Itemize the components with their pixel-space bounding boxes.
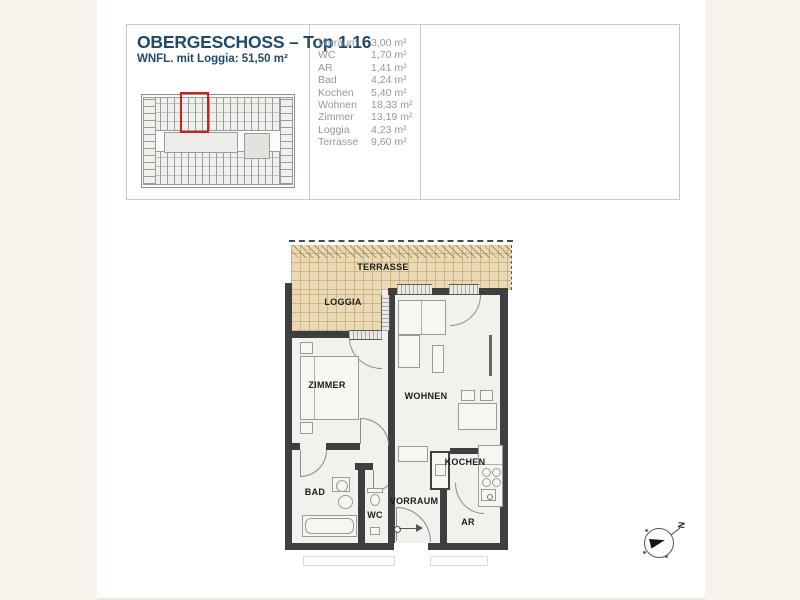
list-item: Kochen5,40 m² bbox=[318, 87, 416, 99]
nightstand bbox=[300, 422, 313, 434]
room-area: 4,24 m² bbox=[371, 74, 407, 86]
neighbour-outline bbox=[430, 556, 488, 566]
dining-table bbox=[458, 403, 497, 430]
entrance-arrow-line bbox=[399, 528, 417, 529]
label-zimmer: ZIMMER bbox=[297, 380, 357, 390]
room-area: 1,70 m² bbox=[371, 49, 407, 61]
room-area: 18,33 m² bbox=[371, 99, 412, 111]
room-area: 13,19 m² bbox=[371, 111, 412, 123]
sofa-chaise bbox=[398, 335, 420, 368]
list-item: AR1,41 m² bbox=[318, 62, 416, 74]
list-item: Vorraum3,00 m² bbox=[318, 37, 416, 49]
closet bbox=[398, 446, 428, 462]
washer-drum bbox=[336, 480, 348, 492]
wall-zimmer-south-a bbox=[292, 443, 300, 450]
mini-wing-left bbox=[143, 97, 156, 185]
sofa bbox=[398, 300, 446, 335]
compass-tick bbox=[645, 529, 648, 532]
wall-bad-wc bbox=[358, 470, 365, 543]
wc-vent bbox=[370, 527, 380, 535]
wall-north-b bbox=[479, 288, 500, 295]
north-compass: N bbox=[638, 520, 688, 564]
bathtub-basin bbox=[305, 518, 354, 534]
mini-core-right bbox=[244, 133, 270, 159]
page-background: { "header": { "title": "OBERGESCHOSS – T… bbox=[0, 0, 800, 600]
wall-south-right bbox=[428, 543, 508, 550]
room-name: Loggia bbox=[318, 124, 371, 136]
chair bbox=[461, 390, 475, 401]
label-bad: BAD bbox=[295, 487, 335, 497]
room-name: Kochen bbox=[318, 87, 371, 99]
entrance-arrow-head bbox=[416, 524, 423, 532]
label-terrasse: TERRASSE bbox=[323, 262, 443, 272]
room-name: Wohnen bbox=[318, 99, 371, 111]
mini-site-plan bbox=[141, 94, 295, 188]
label-wc: WC bbox=[355, 510, 395, 520]
room-name: Bad bbox=[318, 74, 371, 86]
window-wohnen bbox=[397, 284, 432, 295]
terrace-edge-dashed bbox=[289, 240, 513, 242]
compass-north-line bbox=[671, 528, 680, 536]
label-ar: AR bbox=[448, 517, 488, 527]
list-item: Loggia4,23 m² bbox=[318, 124, 416, 136]
sink-drain bbox=[487, 494, 493, 500]
cooktop-burner bbox=[482, 468, 491, 477]
label-wohnen: WOHNEN bbox=[396, 391, 456, 401]
mini-core-left bbox=[164, 132, 238, 153]
wall-west bbox=[285, 283, 292, 550]
list-item: WC1,70 m² bbox=[318, 49, 416, 61]
header-panel: OBERGESCHOSS – Top 1.16 WNFL. mit Loggia… bbox=[126, 24, 680, 200]
sofa-seam bbox=[421, 301, 422, 334]
terrace-edge-right bbox=[511, 245, 512, 290]
mini-units-top bbox=[152, 97, 284, 131]
wall-north-a bbox=[432, 288, 449, 295]
room-area: 4,23 m² bbox=[371, 124, 407, 136]
room-area: 1,41 m² bbox=[371, 62, 407, 74]
wall-zimmer-south-b bbox=[326, 443, 360, 450]
wall-south-left bbox=[285, 543, 394, 550]
mini-wing-right bbox=[280, 97, 293, 185]
toilet-bowl bbox=[370, 494, 380, 506]
room-area-list: Vorraum3,00 m² WC1,70 m² AR1,41 m² Bad4,… bbox=[318, 37, 416, 149]
room-area: 5,40 m² bbox=[371, 87, 407, 99]
wall-loggia-zimmer bbox=[292, 331, 349, 338]
wall-east bbox=[500, 288, 508, 550]
room-name: AR bbox=[318, 62, 371, 74]
compass-tick bbox=[665, 555, 668, 558]
unit-highlight bbox=[180, 92, 209, 133]
room-area: 9,60 m² bbox=[371, 136, 407, 148]
list-item: Terrasse9,60 m² bbox=[318, 136, 416, 148]
list-item: Bad4,24 m² bbox=[318, 74, 416, 86]
cooktop-burner bbox=[482, 478, 491, 487]
room-name: Terrasse bbox=[318, 136, 371, 148]
chair bbox=[480, 390, 493, 401]
panel-divider-2 bbox=[420, 25, 421, 199]
room-name: Zimmer bbox=[318, 111, 371, 123]
side-table bbox=[432, 345, 444, 373]
cooktop-burner bbox=[492, 468, 501, 477]
label-kochen: KOCHEN bbox=[435, 457, 495, 467]
label-loggia: LOGGIA bbox=[308, 297, 378, 307]
wall-kochen-north bbox=[450, 448, 478, 454]
toilet-tank bbox=[367, 488, 383, 493]
room-name: WC bbox=[318, 49, 371, 61]
compass-tick bbox=[643, 551, 646, 554]
bathtub bbox=[302, 515, 357, 537]
tv-sideboard bbox=[489, 335, 492, 376]
bathroom-sink bbox=[338, 495, 353, 509]
wall-wc-north bbox=[355, 463, 373, 470]
terrace-door bbox=[449, 284, 479, 295]
room-name: Vorraum bbox=[318, 37, 371, 49]
list-item: Zimmer13,19 m² bbox=[318, 111, 416, 123]
terrace-hatch-band bbox=[291, 245, 511, 258]
floor-plan: TERRASSE LOGGIA ZIMMER WOHNEN KOCHEN VOR… bbox=[283, 240, 517, 576]
nightstand bbox=[300, 342, 313, 354]
cooktop-burner bbox=[492, 478, 501, 487]
page-subtitle: WNFL. mit Loggia: 51,50 m² bbox=[137, 53, 288, 65]
room-area: 3,00 m² bbox=[371, 37, 407, 49]
compass-north-label: N bbox=[676, 521, 687, 529]
window-loggia-side bbox=[381, 295, 390, 331]
list-item: Wohnen18,33 m² bbox=[318, 99, 416, 111]
kitchen-sink bbox=[481, 489, 496, 501]
neighbour-outline bbox=[303, 556, 395, 566]
label-vorraum: VORRAUM bbox=[384, 496, 444, 506]
